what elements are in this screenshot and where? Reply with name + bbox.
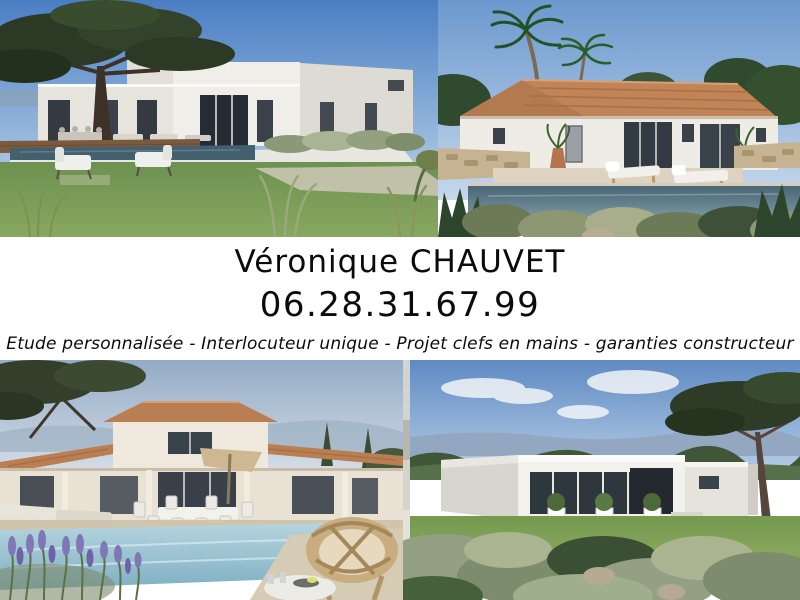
lawn [0,162,438,237]
infinity-pool [10,145,255,164]
photo-modern-villa-pool [0,0,438,237]
agent-name: Véronique CHAUVET [235,242,566,283]
phone-number: 06.28.31.67.99 [260,283,541,327]
advert-collage: Véronique CHAUVET 06.28.31.67.99 Etude p… [0,0,800,600]
photo-two-storey-villa-pool [0,360,403,600]
photo-modern-villa-garden [403,360,800,600]
tagline: Etude personnalisée - Interlocuteur uniq… [6,331,793,357]
text-band: Véronique CHAUVET 06.28.31.67.99 Etude p… [0,237,800,360]
photo-provencal-villa-pool [438,0,800,237]
